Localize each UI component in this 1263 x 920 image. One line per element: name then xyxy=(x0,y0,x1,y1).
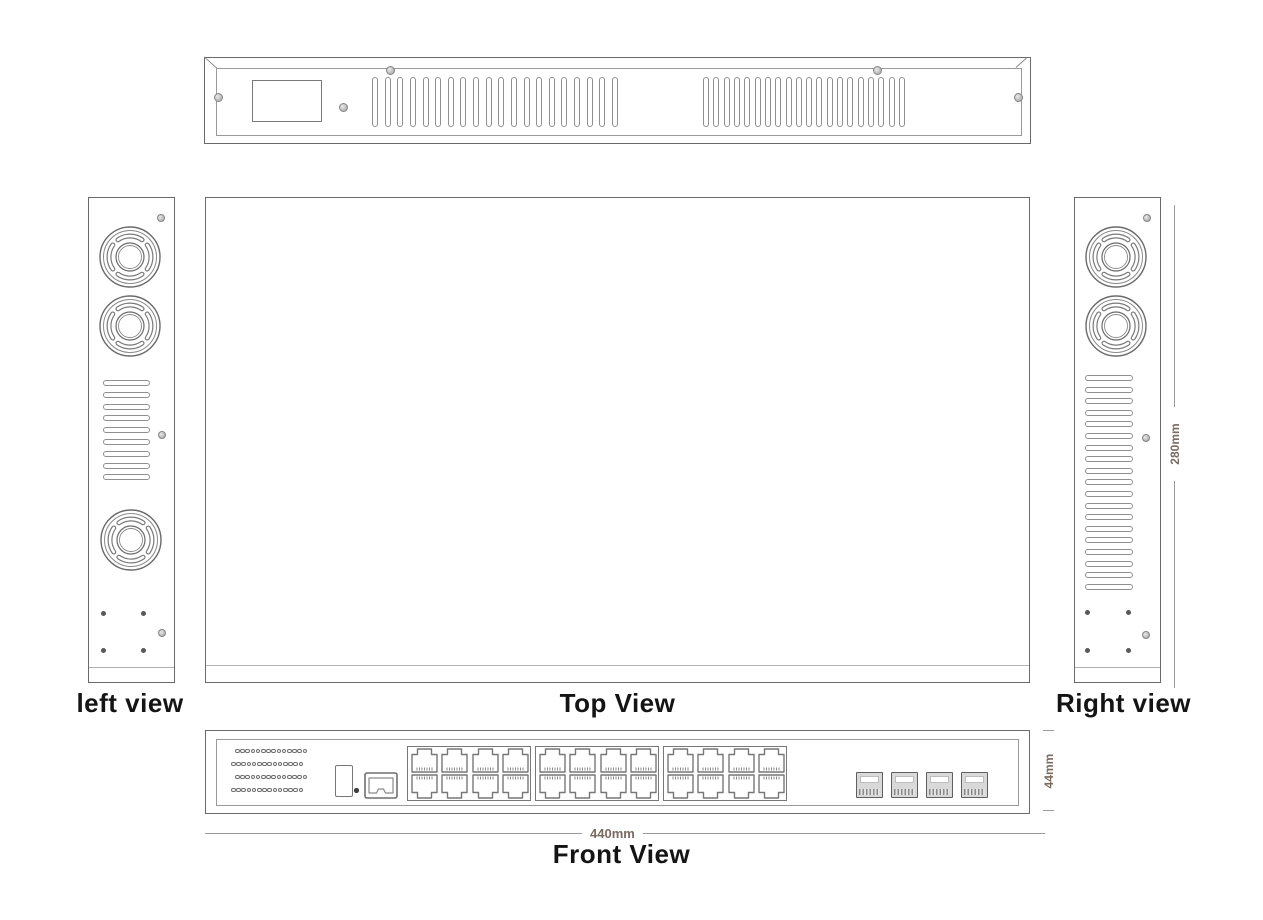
led-dot xyxy=(299,788,304,793)
rj45-port xyxy=(539,774,566,799)
right-view-label: Right view xyxy=(1056,688,1186,719)
led-dot xyxy=(261,749,266,754)
led-dot xyxy=(293,788,298,793)
led-dot xyxy=(245,749,250,754)
led-dot xyxy=(235,775,240,780)
led-dot xyxy=(231,762,236,767)
rj45-port xyxy=(502,748,529,773)
sfp-port xyxy=(926,772,953,798)
rj45-port xyxy=(630,748,657,773)
led-dot xyxy=(288,762,293,767)
led-dot xyxy=(266,749,271,754)
led-dot xyxy=(240,749,245,754)
sfp-hatch xyxy=(859,789,880,795)
dimension-tick xyxy=(1043,810,1054,811)
rj45-port xyxy=(630,774,657,799)
sfp-port xyxy=(856,772,883,798)
led-dot xyxy=(257,762,262,767)
led-dot xyxy=(299,762,304,767)
rj45-port xyxy=(502,774,529,799)
sfp-hatch xyxy=(929,789,950,795)
switch-mechanical-diagram: left view Top View Right view Front View… xyxy=(0,0,1263,920)
width-dimension-label: 440mm xyxy=(582,826,643,841)
led-dot xyxy=(277,749,282,754)
led-dot xyxy=(271,749,276,754)
rj45-port xyxy=(472,774,499,799)
led-dot xyxy=(261,775,266,780)
rj45-port xyxy=(667,774,694,799)
sfp-slot xyxy=(860,776,879,783)
led-dot xyxy=(240,775,245,780)
rj45-port xyxy=(697,774,724,799)
dimension-line xyxy=(643,833,1045,834)
sfp-slot xyxy=(965,776,984,783)
led-dot xyxy=(283,788,288,793)
led-dot xyxy=(247,762,252,767)
led-dot xyxy=(231,788,236,793)
rj45-port xyxy=(411,774,438,799)
led-dot xyxy=(303,749,308,754)
rj45-port xyxy=(728,748,755,773)
led-dot xyxy=(251,775,256,780)
rj45-port xyxy=(600,748,627,773)
width-dimension: 440mm xyxy=(205,826,1045,841)
console-port xyxy=(364,772,398,799)
dimension-line xyxy=(1174,481,1175,688)
sfp-slot xyxy=(930,776,949,783)
depth-dimension-label: 280mm xyxy=(1168,423,1182,464)
led-dot xyxy=(266,775,271,780)
led-dot xyxy=(262,788,267,793)
led-dot xyxy=(267,788,272,793)
led-dot xyxy=(257,788,262,793)
dimension-tick xyxy=(1043,730,1054,731)
rj45-port xyxy=(411,748,438,773)
led-dot xyxy=(297,775,302,780)
led-dot xyxy=(262,762,267,767)
front-view-panel xyxy=(0,0,1263,920)
sfp-port xyxy=(961,772,988,798)
led-dot xyxy=(235,749,240,754)
led-dot xyxy=(293,762,298,767)
rj45-port xyxy=(539,748,566,773)
rj45-port xyxy=(667,748,694,773)
rj45-port xyxy=(569,748,596,773)
led-dot xyxy=(292,749,297,754)
rj45-port xyxy=(758,748,785,773)
led-dot xyxy=(236,788,241,793)
power-slot xyxy=(335,765,353,797)
led-dot xyxy=(287,749,292,754)
height-dimension-label: 44mm xyxy=(1042,753,1056,788)
led-dot xyxy=(283,762,288,767)
rj45-port xyxy=(441,748,468,773)
led-dot xyxy=(287,775,292,780)
sfp-hatch xyxy=(894,789,915,795)
depth-dimension: 280mm xyxy=(1168,203,1182,693)
sfp-slot xyxy=(895,776,914,783)
led-dot xyxy=(251,749,256,754)
led-dot xyxy=(303,775,308,780)
left-view-label: left view xyxy=(70,688,190,719)
height-dimension: 44mm xyxy=(1041,728,1057,813)
led-dot xyxy=(273,788,278,793)
reset-pin-dot xyxy=(354,788,359,793)
rj45-port xyxy=(472,748,499,773)
led-dot xyxy=(297,749,302,754)
led-dot xyxy=(245,775,250,780)
rj45-port xyxy=(441,774,468,799)
led-dot xyxy=(241,762,246,767)
led-dot xyxy=(241,788,246,793)
dimension-line xyxy=(205,833,582,834)
rj45-port xyxy=(728,774,755,799)
led-dot xyxy=(267,762,272,767)
front-view-label: Front View xyxy=(205,839,1038,870)
top-view-label: Top View xyxy=(205,688,1030,719)
rj45-port xyxy=(569,774,596,799)
rj45-port xyxy=(600,774,627,799)
led-dot xyxy=(247,788,252,793)
led-dot xyxy=(273,762,278,767)
rj45-port xyxy=(697,748,724,773)
sfp-port xyxy=(891,772,918,798)
led-dot xyxy=(271,775,276,780)
led-dot xyxy=(277,775,282,780)
led-dot xyxy=(236,762,241,767)
dimension-line xyxy=(1174,205,1175,407)
led-dot xyxy=(292,775,297,780)
led-dot xyxy=(288,788,293,793)
sfp-hatch xyxy=(964,789,985,795)
rj45-port xyxy=(758,774,785,799)
